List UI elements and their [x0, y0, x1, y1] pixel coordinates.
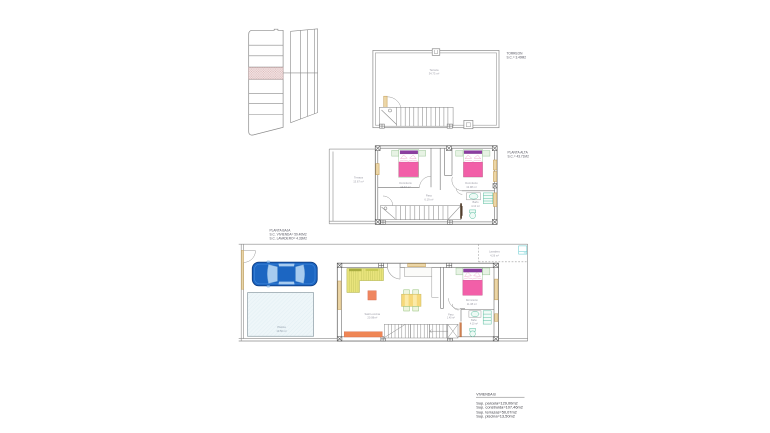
svg-text:4.10 m²: 4.10 m² — [471, 204, 480, 208]
svg-text:Terraza: Terraza — [430, 68, 439, 72]
svg-text:Lavadero: Lavadero — [489, 250, 500, 254]
svg-text:S.C.= 3.49M2: S.C.= 3.49M2 — [507, 56, 527, 60]
svg-text:34.73 m²: 34.73 m² — [429, 72, 440, 76]
svg-text:Baño: Baño — [472, 200, 479, 204]
svg-text:Sup. piscina=13,50m2: Sup. piscina=13,50m2 — [476, 414, 515, 419]
svg-text:VIVIENDA B: VIVIENDA B — [476, 393, 496, 397]
svg-text:Terraza: Terraza — [354, 176, 363, 180]
svg-text:13.98 m²: 13.98 m² — [466, 185, 477, 189]
svg-text:S.C.= 43.71M2: S.C.= 43.71M2 — [508, 155, 530, 159]
svg-text:4.26 m²: 4.26 m² — [490, 253, 499, 257]
svg-text:S.C. LAVADERO= 4.33M2: S.C. LAVADERO= 4.33M2 — [270, 236, 308, 240]
svg-text:6.19 m²: 6.19 m² — [424, 198, 433, 202]
svg-text:11.38 m²: 11.38 m² — [467, 302, 477, 306]
svg-text:20.08m²: 20.08m² — [367, 316, 377, 320]
svg-text:Paso: Paso — [426, 194, 433, 198]
svg-text:Dormitorio: Dormitorio — [465, 181, 478, 185]
svg-text:4.10 m²: 4.10 m² — [470, 322, 478, 325]
svg-text:Dormitorio: Dormitorio — [466, 298, 479, 302]
svg-text:1.40 m²: 1.40 m² — [447, 317, 455, 320]
svg-text:13.67 m²: 13.67 m² — [353, 180, 364, 184]
svg-text:Piscina: Piscina — [277, 325, 286, 329]
svg-text:Dormitorio: Dormitorio — [399, 181, 412, 185]
svg-text:Salón-cocina: Salón-cocina — [365, 312, 381, 316]
svg-text:13.50 m²: 13.50 m² — [276, 329, 286, 333]
